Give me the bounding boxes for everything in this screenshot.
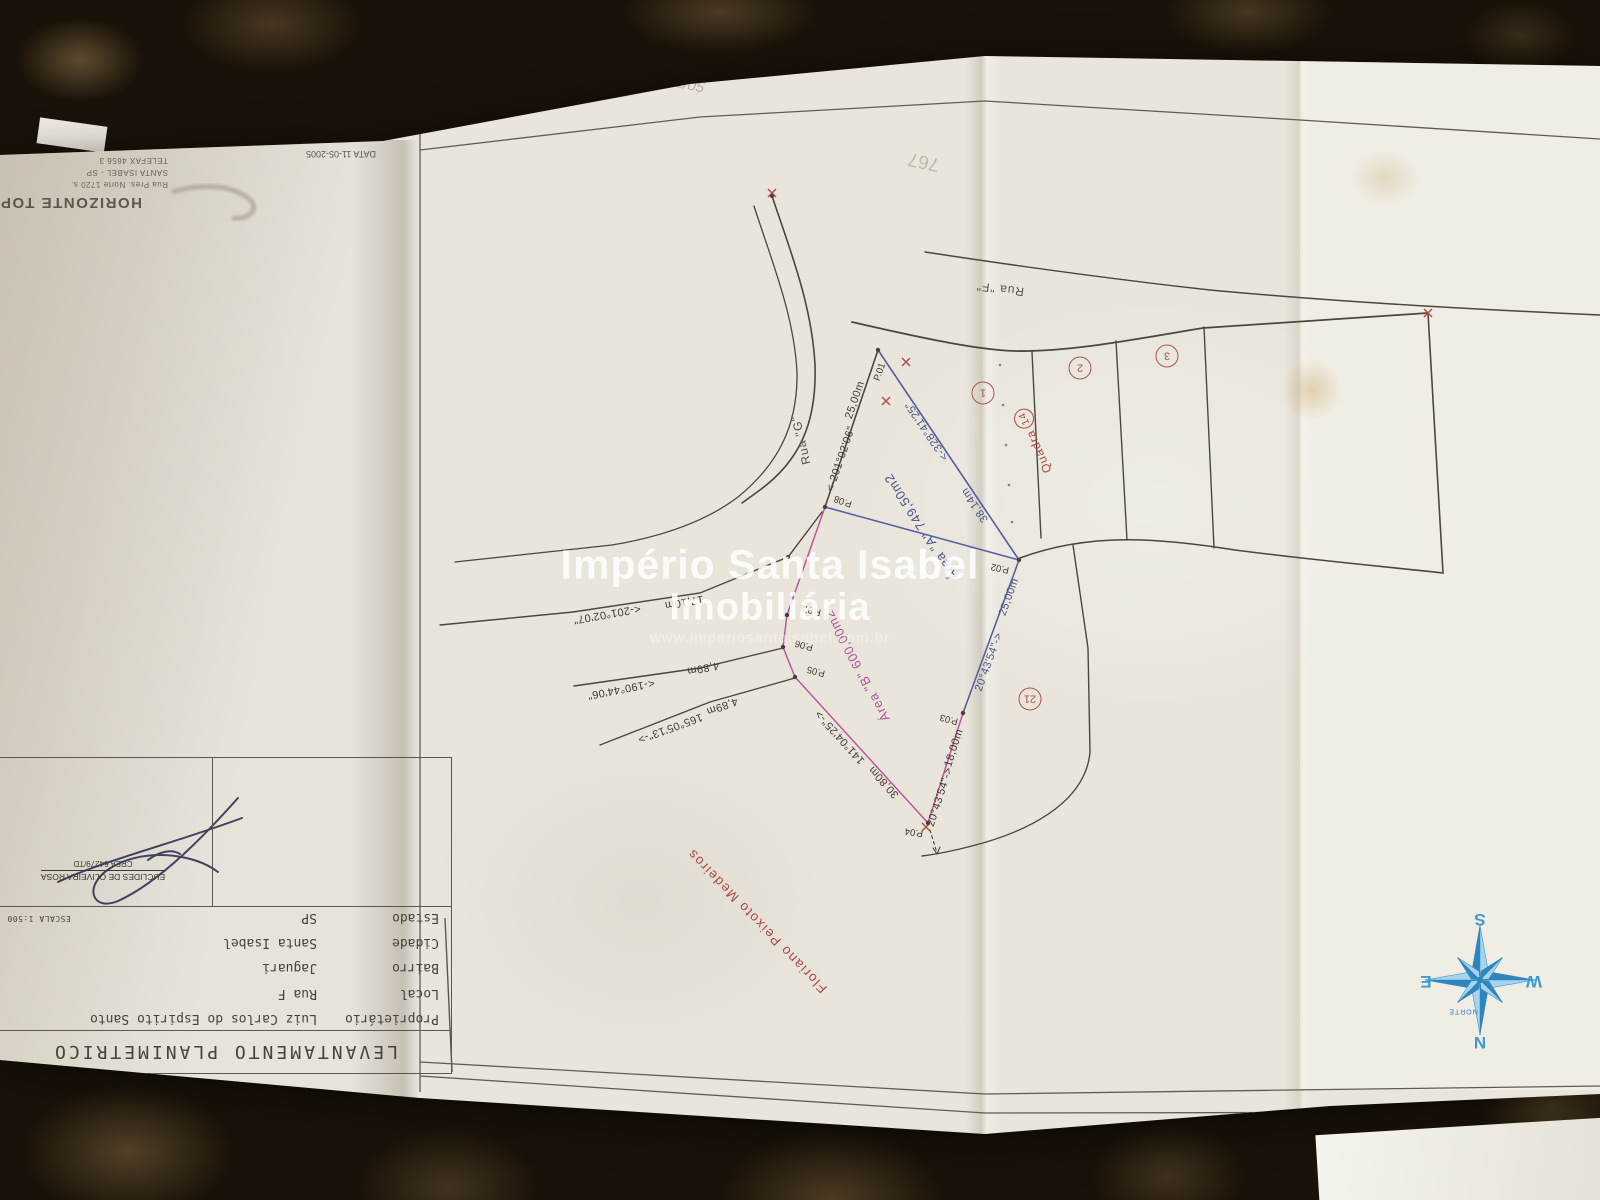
- survey-marker-crosses: [768, 189, 1432, 831]
- surveyor-name: EUCLIDES DE OLIVEIRA ROSA: [41, 870, 165, 882]
- lot-number-2: 2: [1069, 357, 1092, 380]
- title-block: LEVANTAMENTO PLANIMETRICO Proprietário L…: [0, 757, 452, 1074]
- paper-wrapper: Rua "F" Rua "G" Quadra 14 Área "A" 749,5…: [0, 0, 1600, 1200]
- title-block-row-estado: Estado SP: [7, 910, 439, 925]
- row-value: Jaguari: [262, 961, 317, 976]
- plan-sheet: Rua "F" Rua "G" Quadra 14 Área "A" 749,5…: [0, 0, 1600, 1200]
- watermark-url: www.imperiosantaisabel.com.br: [650, 630, 890, 647]
- compass-letter-e: E: [1420, 971, 1431, 991]
- lot-number-3: 3: [1156, 345, 1179, 368]
- row-value: Santa Isabel: [223, 935, 317, 950]
- watermark-line1: Império Santa Isabel: [561, 542, 980, 589]
- signature-box-divider: [212, 758, 213, 906]
- lot-number-1: 1: [972, 382, 995, 405]
- point-p04: P.04: [904, 825, 924, 838]
- row-label: Cidade: [317, 935, 439, 950]
- stamp-company: HORIZONTE TOPO: [0, 194, 142, 211]
- compass-letter-n: N: [1474, 1032, 1486, 1052]
- title-block-row-cidade: Cidade Santa Isabel: [7, 935, 439, 950]
- title-block-row-proprietario: Proprietário Luiz Carlos do Espirito San…: [7, 1011, 439, 1026]
- surveyor-identity: EUCLIDES DE OLIVEIRA ROSA CREA 64279/TD: [13, 859, 193, 882]
- row-label: Local: [317, 986, 439, 1001]
- title-block-row-bairro: Bairro Jaguari: [7, 961, 439, 976]
- stamp-address: Rua Pres. Norte 1720 s.: [0, 180, 168, 189]
- scale-label: ESCALA 1:500: [7, 914, 71, 923]
- tie-point-dots: [999, 364, 1014, 524]
- compass-rose: [1425, 925, 1535, 1035]
- title-block-rows: Proprietário Luiz Carlos do Espirito San…: [7, 910, 439, 1026]
- lot-number-21: 21: [1019, 688, 1042, 711]
- compass-letter-s: S: [1474, 909, 1485, 929]
- row-label: Bairro: [317, 961, 439, 976]
- photo-of-survey-plan: Rua "F" Rua "G" Quadra 14 Área "A" 749,5…: [0, 0, 1600, 1200]
- surveyor-crea: CREA 64279/TD: [13, 859, 193, 868]
- stamp-city: SANTA ISABEL - SP: [0, 168, 168, 177]
- stamp-phone: TELEFAX 4656 3: [0, 156, 168, 165]
- title-block-row-local: Local Rua F: [7, 986, 439, 1001]
- pencil-smudge: [172, 187, 254, 219]
- title-block-title: LEVANTAMENTO PLANIMETRICO: [0, 1030, 451, 1073]
- row-value: SP: [301, 910, 317, 925]
- compass-norte-label: NORTE: [1448, 1008, 1477, 1015]
- row-label: Proprietário: [317, 1011, 439, 1026]
- row-value: Rua F: [278, 986, 317, 1001]
- row-label: Estado: [317, 910, 439, 925]
- compass-letter-w: W: [1526, 971, 1542, 991]
- stamp-date: DATA 11-05-2005: [222, 149, 376, 159]
- row-value: Luiz Carlos do Espirito Santo: [90, 1011, 317, 1026]
- signature-box: EUCLIDES DE OLIVEIRA ROSA CREA 64279/TD: [0, 758, 451, 907]
- watermark-line2: Imobiliária: [669, 587, 870, 630]
